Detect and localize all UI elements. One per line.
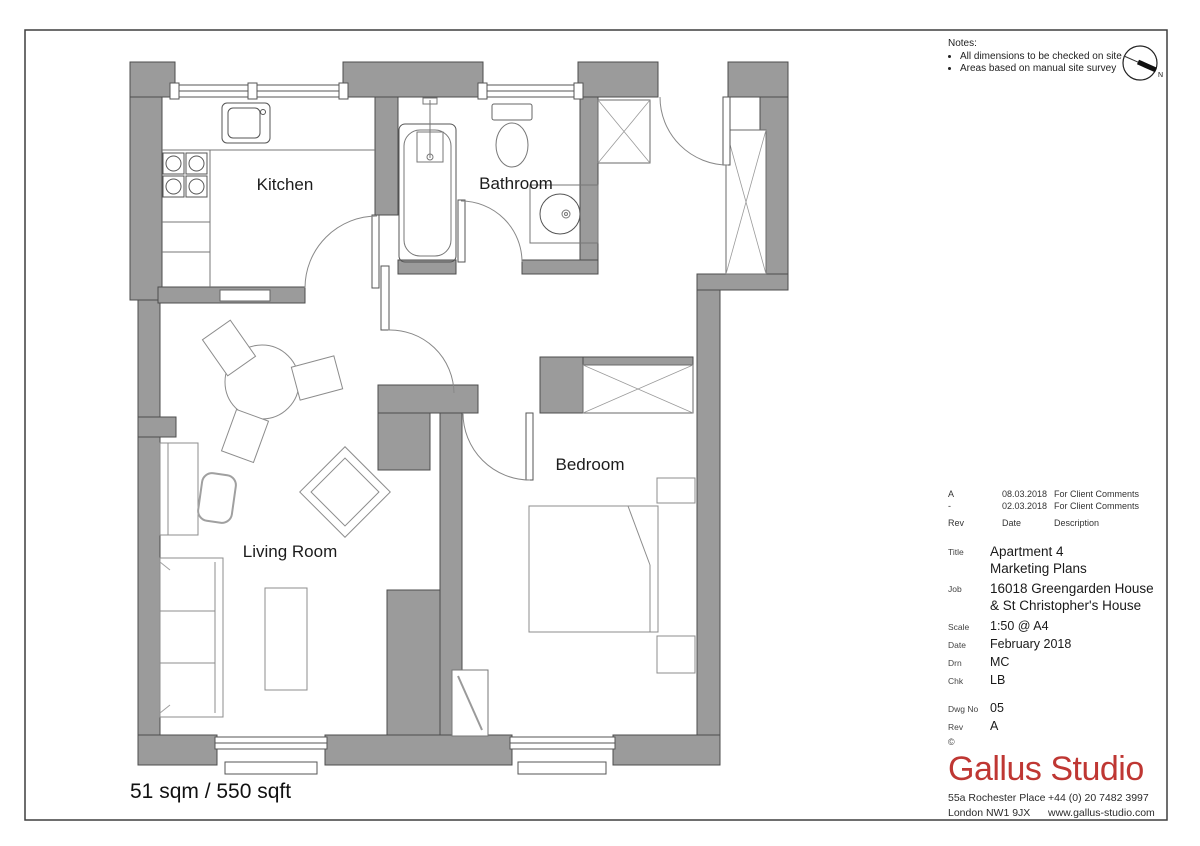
rev-header: Rev (948, 517, 1002, 529)
revision-table: A 08.03.2018 For Client Comments - 02.03… (948, 488, 1172, 529)
field-value: MC (990, 655, 1172, 670)
field-revision: Rev A (948, 719, 1172, 734)
field-value: 05 (990, 701, 1172, 716)
field-label: Date (948, 637, 990, 652)
website-url: www.gallus-studio.com (1048, 806, 1172, 821)
drawing-sheet: Kitchen Bathroom Bedroom Living Room 51 … (0, 0, 1200, 841)
bathroom-door (458, 200, 522, 262)
field-label: Drn (948, 655, 990, 670)
brand-address: 55a Rochester Place +44 (0) 20 7482 3997… (948, 791, 1172, 820)
rev-date: 08.03.2018 (1002, 488, 1054, 500)
bathtub (399, 98, 456, 262)
gallus-studio-logo: Gallus Studio (948, 751, 1172, 787)
living-room-door (381, 266, 454, 393)
field-value: LB (990, 673, 1172, 688)
description-header: Description (1054, 517, 1172, 529)
coffee-table (265, 588, 307, 690)
field-checked-by: Chk LB (948, 673, 1172, 688)
kitchen-window (170, 83, 348, 99)
living-room-furniture (160, 320, 390, 717)
doors (305, 97, 730, 480)
revision-row: A 08.03.2018 For Client Comments (948, 488, 1172, 500)
note-item: Areas based on manual site survey (960, 63, 1172, 75)
dining-chair (291, 356, 342, 400)
phone-number: +44 (0) 20 7482 3997 (1048, 791, 1172, 806)
rev-value: A (948, 488, 1002, 500)
field-title: Title Apartment 4 Marketing Plans (948, 544, 1172, 577)
kitchen-label: Kitchen (257, 175, 314, 194)
living-room-window (215, 737, 327, 774)
note-item: All dimensions to be checked on site (960, 51, 1172, 63)
bedside-table-bottom (657, 636, 695, 673)
rev-value: - (948, 500, 1002, 512)
bedside-table-top (657, 478, 695, 503)
kitchen-sink (222, 103, 270, 143)
armchair (300, 447, 391, 538)
address-line: London NW1 9JX (948, 806, 1048, 821)
kitchen-door (305, 215, 379, 288)
bathroom-closet (598, 100, 650, 163)
closets (583, 100, 766, 413)
revision-row: - 02.03.2018 For Client Comments (948, 500, 1172, 512)
field-date: Date February 2018 (948, 637, 1172, 652)
bedroom-label: Bedroom (556, 455, 625, 474)
rev-desc: For Client Comments (1054, 488, 1172, 500)
bedroom-furniture (452, 478, 695, 736)
bathroom-label: Bathroom (479, 174, 553, 193)
field-drawing-number: Dwg No 05 (948, 701, 1172, 716)
entrance-door (660, 97, 730, 165)
living-room-label: Living Room (243, 542, 338, 561)
sofa (160, 558, 223, 717)
field-job: Job 16018 Greengarden House & St Christo… (948, 581, 1172, 614)
area-label: 51 sqm / 550 sqft (130, 780, 291, 803)
desk (160, 443, 198, 535)
kitchen-fixtures (162, 103, 375, 301)
rev-desc: For Client Comments (1054, 500, 1172, 512)
rev-date: 02.03.2018 (1002, 500, 1054, 512)
radiator-panel (452, 670, 488, 736)
toilet (492, 104, 532, 167)
address-line: 55a Rochester Place (948, 791, 1048, 806)
bedroom-door (463, 413, 533, 480)
field-drawn-by: Drn MC (948, 655, 1172, 670)
field-value: Apartment 4 Marketing Plans (990, 544, 1172, 577)
bathroom-window (478, 83, 583, 99)
field-label: Dwg No (948, 701, 990, 716)
notes: Notes: All dimensions to be checked on s… (948, 38, 1172, 75)
field-value: A (990, 719, 1172, 734)
copyright-symbol: © (948, 737, 1172, 747)
hall-closet (726, 130, 766, 274)
bedroom-window (510, 737, 615, 774)
bedroom-wardrobe (583, 365, 693, 413)
field-scale: Scale 1:50 @ A4 (948, 619, 1172, 634)
field-value: February 2018 (990, 637, 1172, 652)
notes-heading: Notes: (948, 38, 1172, 50)
field-label: Job (948, 581, 990, 614)
field-value: 1:50 @ A4 (990, 619, 1172, 634)
field-label: Title (948, 544, 990, 577)
field-label: Scale (948, 619, 990, 634)
hob (163, 153, 207, 197)
date-header: Date (1002, 517, 1054, 529)
revision-header-row: Rev Date Description (948, 517, 1172, 529)
bed (529, 506, 658, 632)
desk-chair (197, 472, 237, 524)
field-label: Chk (948, 673, 990, 688)
field-value: 16018 Greengarden House & St Christopher… (990, 581, 1172, 614)
field-label: Rev (948, 719, 990, 734)
